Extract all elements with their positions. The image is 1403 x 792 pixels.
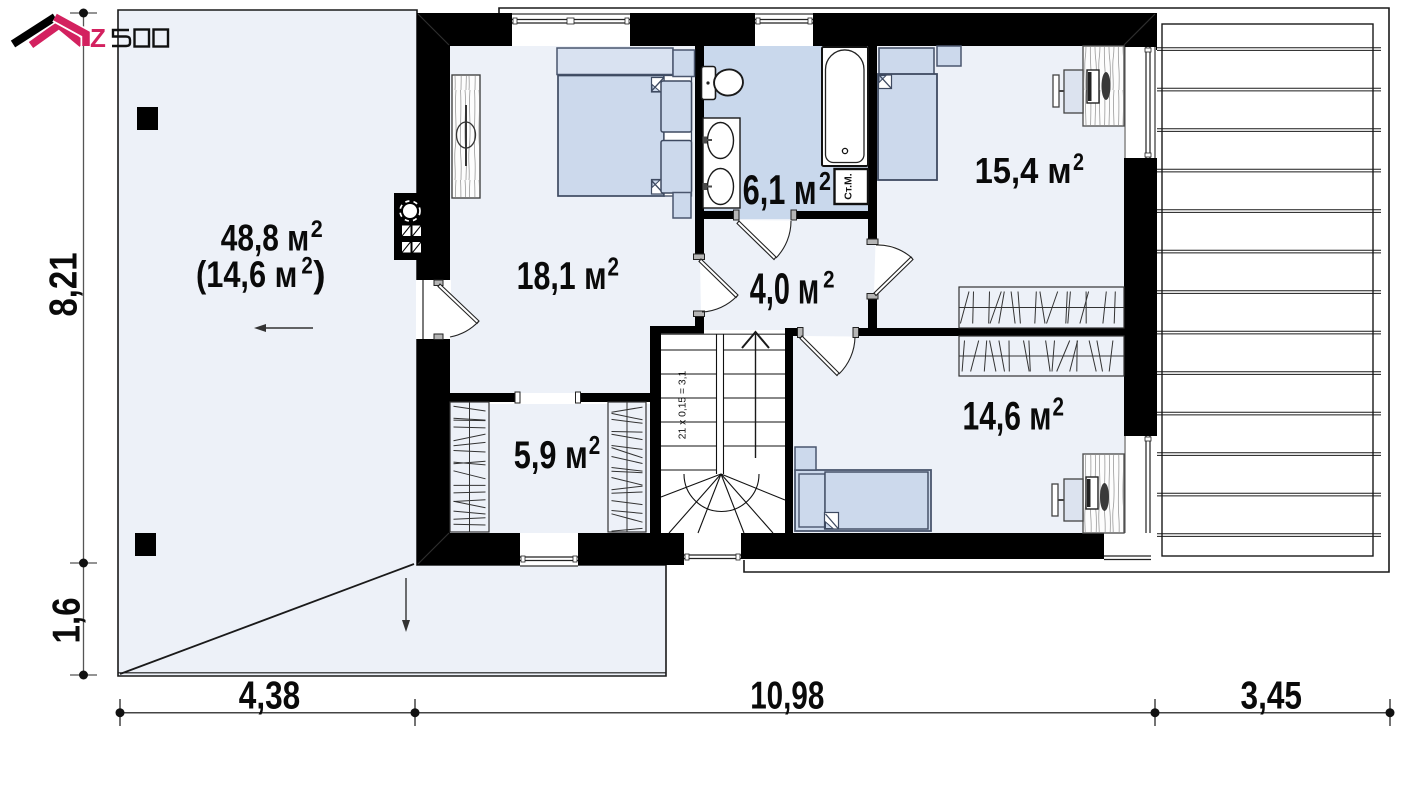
svg-text:15,4 м: 15,4 м — [975, 150, 1072, 191]
svg-text:(14,6 м: (14,6 м — [196, 254, 297, 295]
svg-text:2: 2 — [589, 430, 601, 460]
svg-text:48,8 м: 48,8 м — [221, 218, 309, 259]
svg-text:6,1 м: 6,1 м — [743, 166, 817, 213]
svg-text:5,9 м: 5,9 м — [514, 434, 588, 477]
svg-text:18,1 м: 18,1 м — [517, 255, 607, 298]
svg-text:14,6 м: 14,6 м — [963, 395, 1052, 439]
svg-text:2: 2 — [301, 252, 312, 279]
svg-text:4,38: 4,38 — [239, 674, 300, 717]
svg-text:2: 2 — [608, 252, 620, 282]
svg-text:1,6: 1,6 — [46, 598, 89, 644]
svg-text:2: 2 — [1053, 392, 1065, 422]
svg-text:21 x 0,15 = 3,1: 21 x 0,15 = 3,1 — [678, 371, 689, 440]
svg-text:4,0 м: 4,0 м — [750, 264, 819, 313]
svg-text:2: 2 — [819, 166, 831, 196]
svg-text:2: 2 — [1073, 149, 1084, 176]
svg-text:2: 2 — [823, 267, 834, 294]
svg-text:Ст.М.: Ст.М. — [843, 173, 855, 199]
svg-text:2: 2 — [311, 216, 323, 243]
svg-text:8,21: 8,21 — [43, 253, 86, 317]
svg-text:): ) — [313, 254, 325, 295]
svg-text:Z: Z — [90, 23, 106, 53]
svg-text:10,98: 10,98 — [750, 674, 824, 717]
svg-text:3,45: 3,45 — [1241, 674, 1303, 717]
